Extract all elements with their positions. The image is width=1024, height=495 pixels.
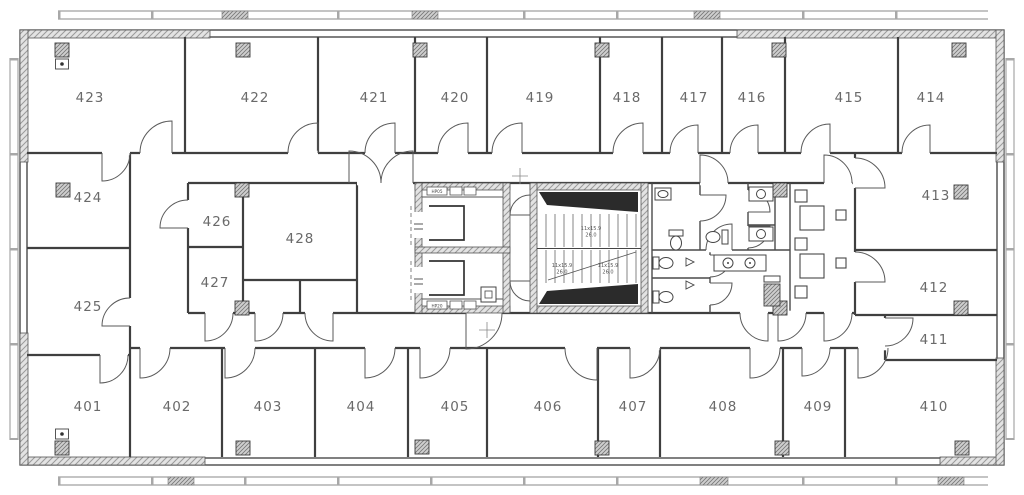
room-label-425: 425	[74, 299, 103, 315]
cabinet-icon	[795, 238, 807, 250]
elevator-door-1	[414, 212, 424, 238]
structural-columns	[55, 43, 969, 455]
room-label-413: 413	[922, 188, 951, 204]
toilet-icon	[653, 291, 659, 303]
svg-text:26.0: 26.0	[585, 233, 596, 239]
room-label-423: 423	[76, 90, 105, 106]
urinal-icon	[686, 281, 694, 289]
elevator-car-2	[429, 261, 464, 295]
room-label-416: 416	[738, 90, 767, 106]
room-label-424: 424	[74, 190, 103, 206]
room-label-417: 417	[680, 90, 709, 106]
chair-icon	[836, 258, 846, 268]
room-label-412: 412	[920, 280, 949, 296]
room-label-409: 409	[804, 399, 833, 415]
elevator-car-1	[429, 206, 464, 240]
svg-text:26.0: 26.0	[556, 270, 567, 276]
urinal-icon	[686, 258, 694, 266]
window-band	[10, 11, 1014, 485]
floor-plan-drawing: HP05 HP20	[0, 0, 1024, 495]
toilet-icon	[653, 257, 659, 269]
room-label-405: 405	[441, 399, 470, 415]
floor-plan: HP05 HP20	[0, 0, 1024, 495]
svg-text:11x15.9: 11x15.9	[598, 263, 618, 269]
room-label-415: 415	[835, 90, 864, 106]
elevator-door-2	[414, 267, 424, 293]
chair-icon	[836, 210, 846, 220]
restroom-fixtures	[653, 187, 780, 306]
stair-landing-top	[539, 192, 638, 212]
room-label-401: 401	[74, 399, 103, 415]
stairwell: 11x15.9 26.0 11x15.9 26.0 11x15.9 26.0	[530, 183, 648, 313]
table-icon	[800, 254, 824, 278]
stair-landing-bottom	[539, 284, 638, 304]
room-label-428: 428	[286, 231, 315, 247]
toilet-icon	[669, 230, 683, 236]
room-label-407: 407	[619, 399, 648, 415]
room-label-414: 414	[917, 90, 946, 106]
room-label-421: 421	[360, 90, 389, 106]
room-labels: 423 422 421 420 419 418 417 416 415 414 …	[74, 90, 951, 415]
room-label-410: 410	[920, 399, 949, 415]
lounge-furniture	[795, 190, 846, 298]
floor-drain-icon	[481, 287, 496, 302]
room-label-419: 419	[526, 90, 555, 106]
room-label-403: 403	[254, 399, 283, 415]
cabinet-icon	[795, 190, 807, 202]
toilet-icon	[722, 230, 728, 244]
svg-text:11x15.9: 11x15.9	[581, 226, 601, 232]
room-label-418: 418	[613, 90, 642, 106]
door-swings	[100, 121, 930, 383]
service-chase	[764, 284, 780, 306]
table-icon	[800, 206, 824, 230]
room-label-420: 420	[441, 90, 470, 106]
room-label-402: 402	[163, 399, 192, 415]
room-label-422: 422	[241, 90, 270, 106]
room-label-427: 427	[201, 275, 230, 291]
room-label-404: 404	[347, 399, 376, 415]
room-label-426: 426	[203, 214, 232, 230]
room-label-406: 406	[534, 399, 563, 415]
equipment-label-top: HP05	[431, 189, 442, 194]
vanity-counter	[714, 255, 766, 271]
svg-text:11x15.9: 11x15.9	[552, 263, 572, 269]
equipment-label-bottom: HP20	[431, 304, 442, 309]
room-label-411: 411	[920, 332, 949, 348]
cabinet-icon	[795, 286, 807, 298]
svg-text:26.0: 26.0	[602, 270, 613, 276]
room-label-408: 408	[709, 399, 738, 415]
